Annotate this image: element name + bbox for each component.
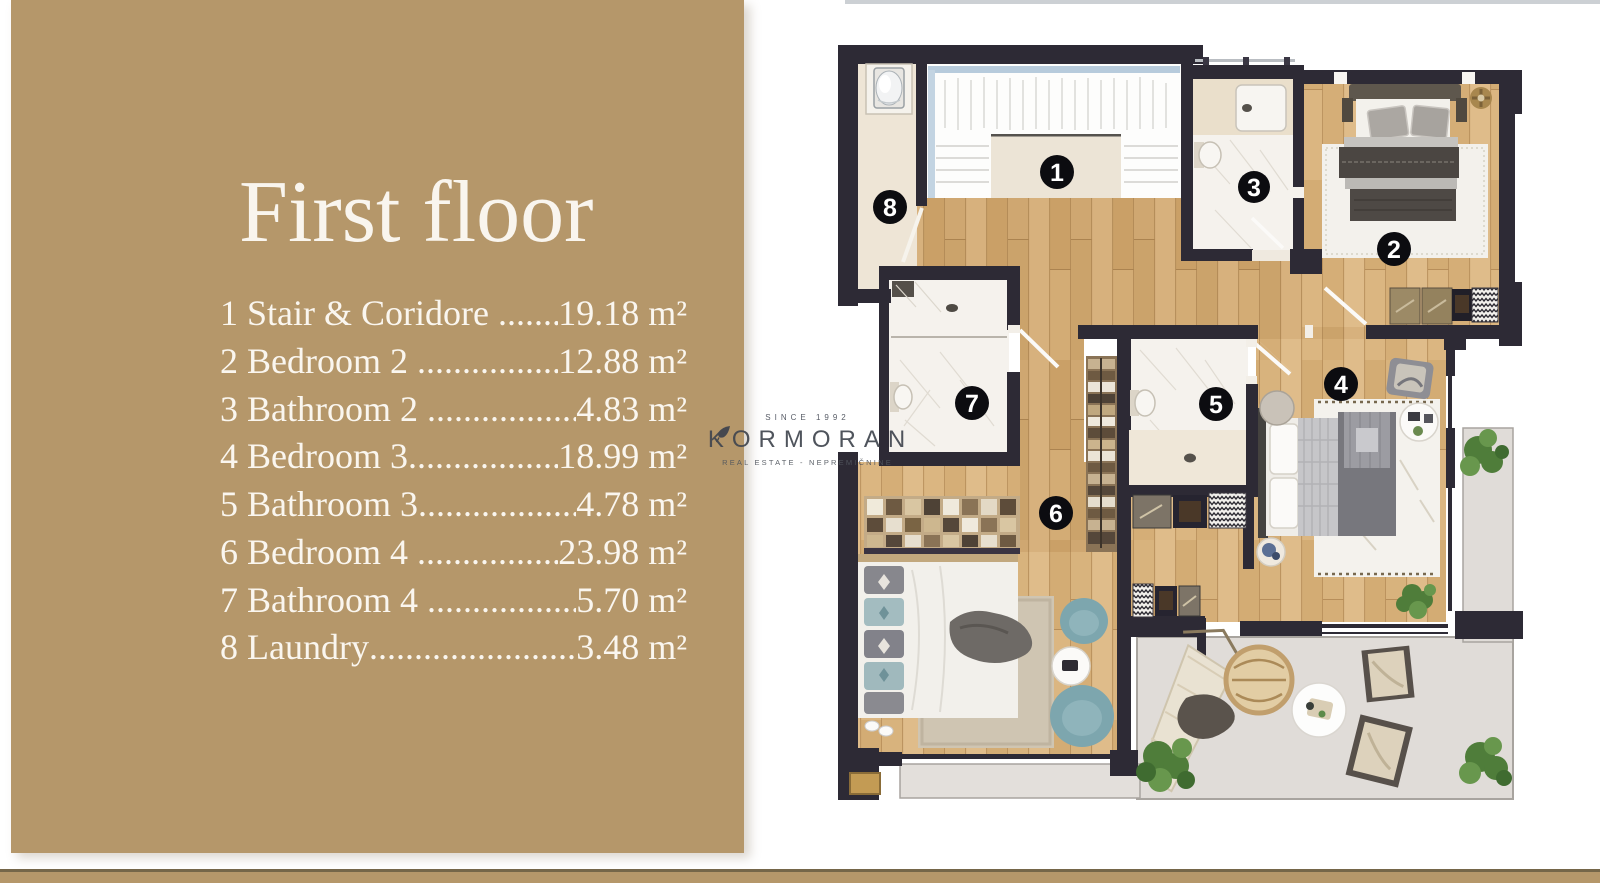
svg-text:7: 7 bbox=[965, 390, 979, 418]
svg-text:2: 2 bbox=[1387, 236, 1401, 264]
svg-text:1: 1 bbox=[1050, 159, 1064, 187]
svg-text:8: 8 bbox=[883, 194, 897, 222]
svg-text:5: 5 bbox=[1209, 391, 1223, 419]
svg-text:3: 3 bbox=[1247, 174, 1261, 202]
svg-text:6: 6 bbox=[1049, 500, 1063, 528]
svg-text:4: 4 bbox=[1334, 371, 1348, 399]
